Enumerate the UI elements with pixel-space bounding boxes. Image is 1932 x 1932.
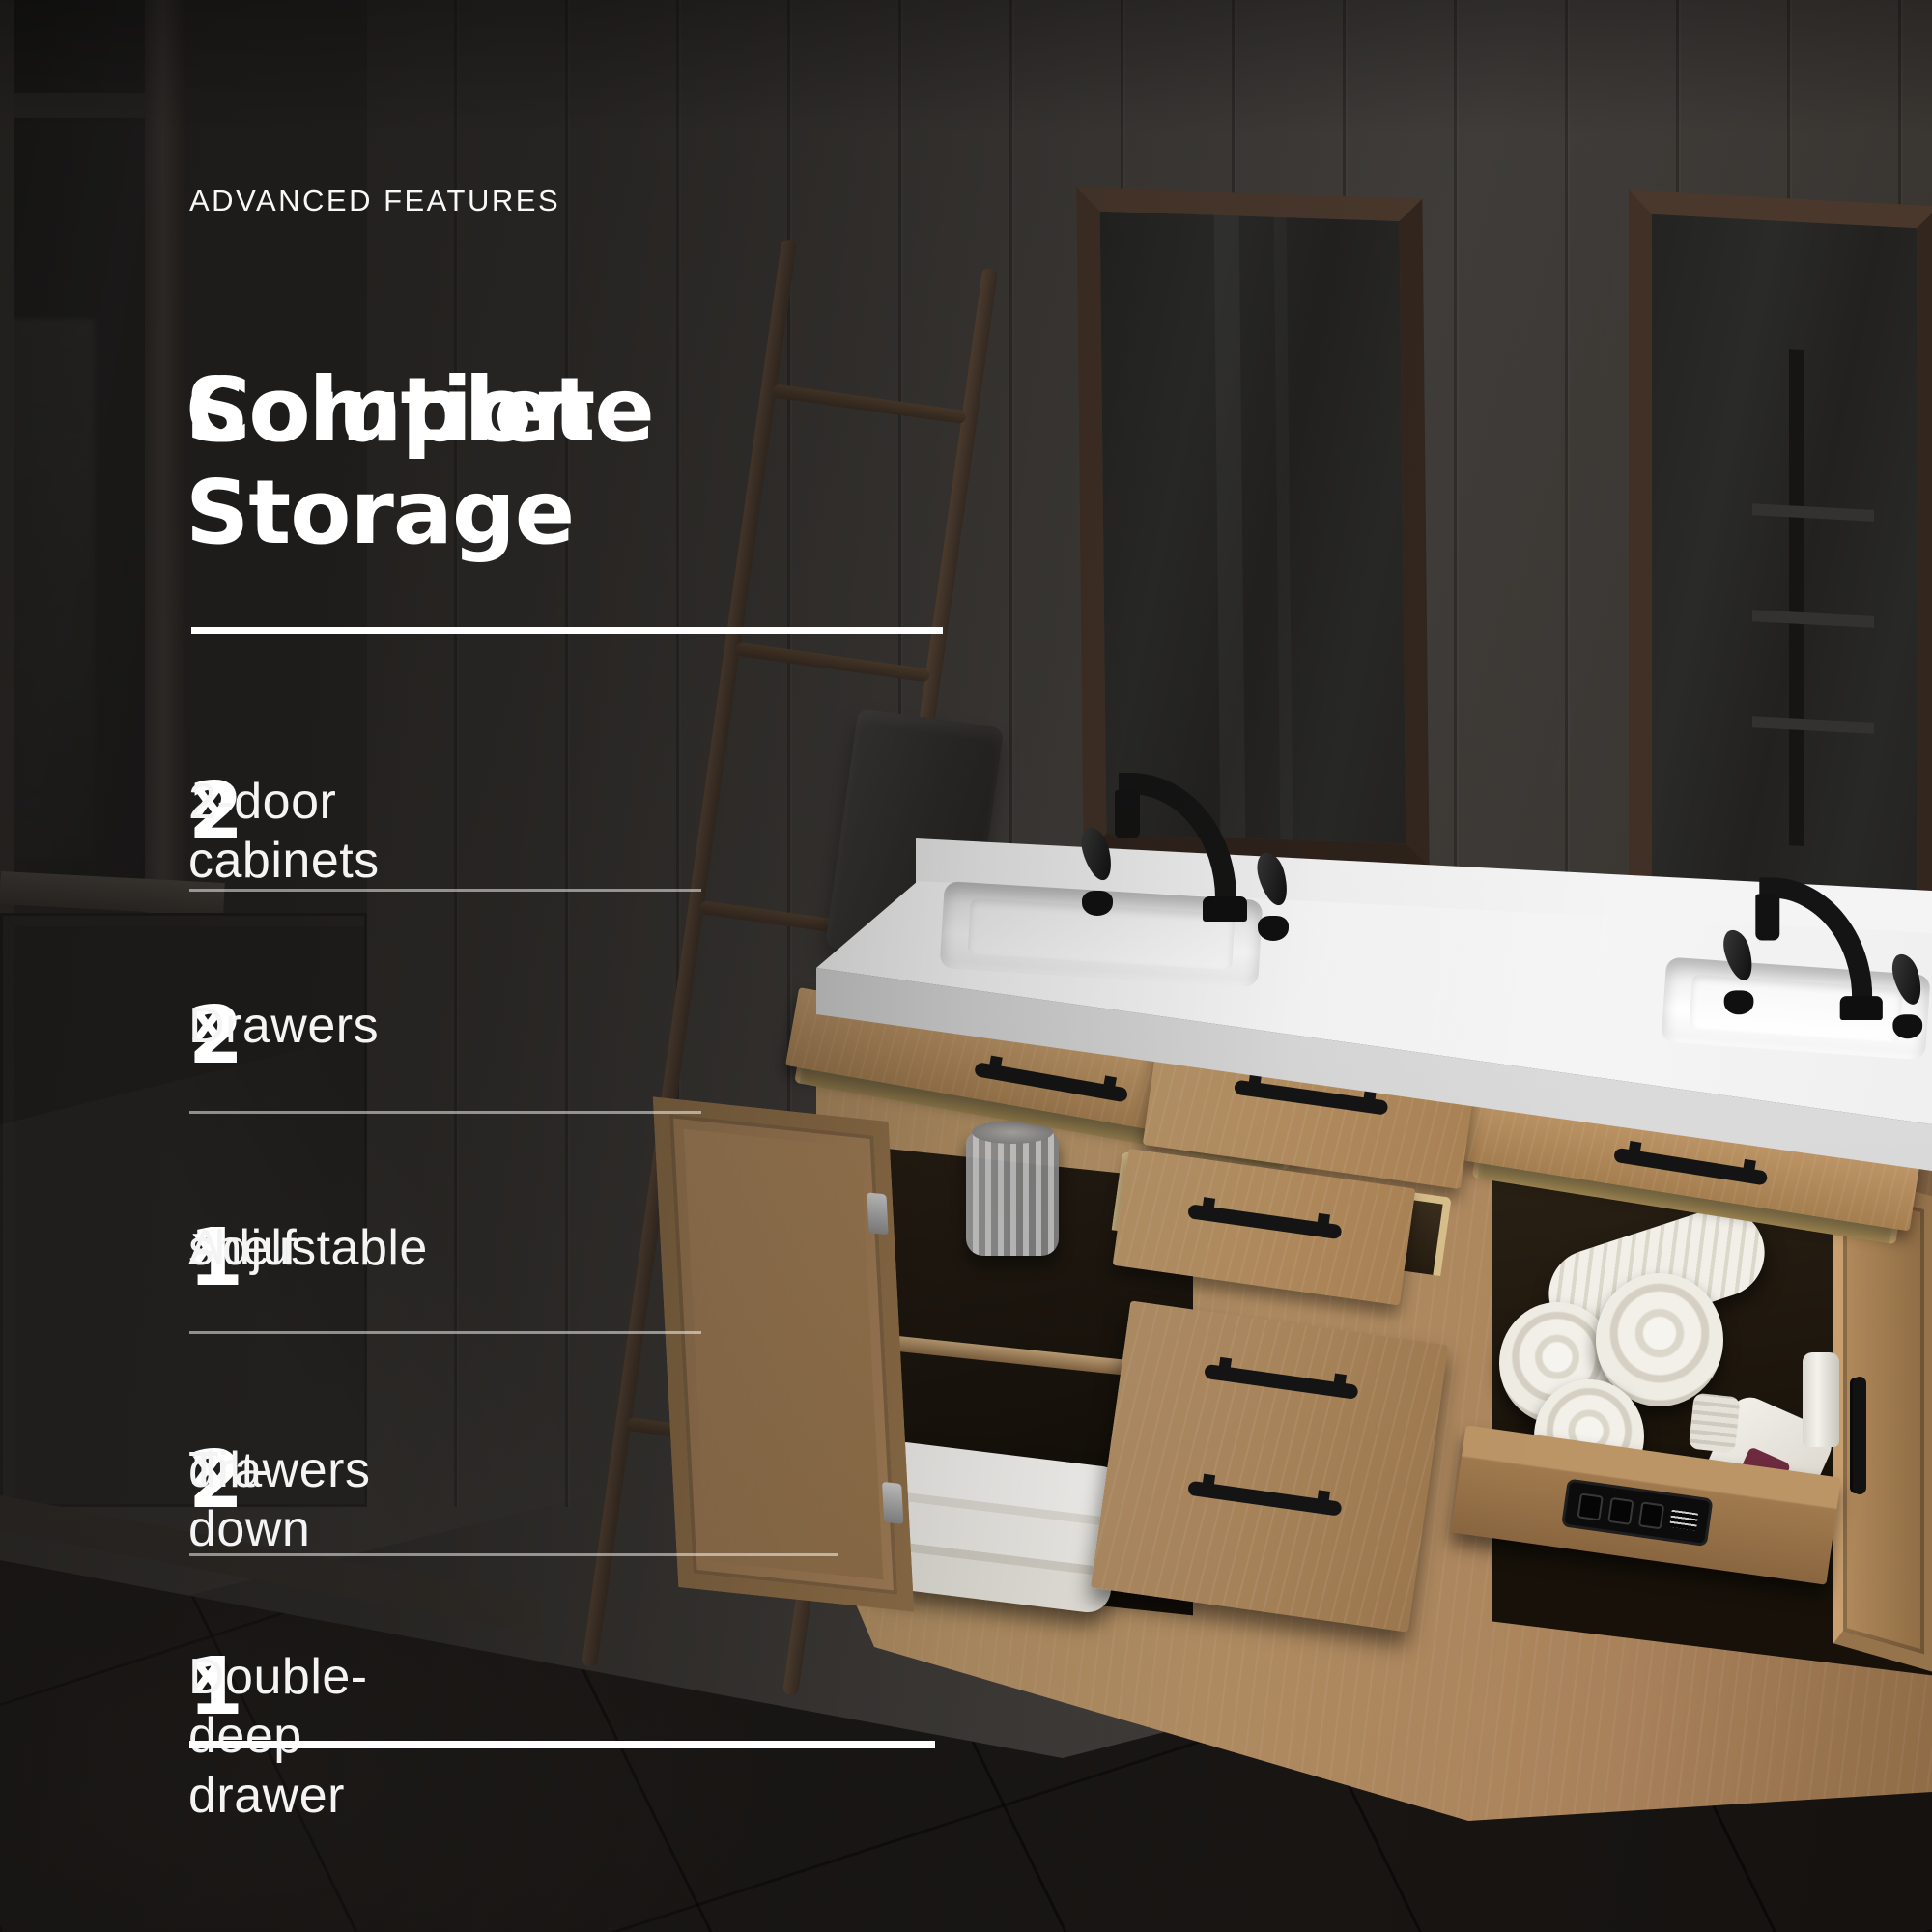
item-divider xyxy=(189,1553,838,1556)
item-divider xyxy=(189,889,701,892)
feature-label-line: drawers xyxy=(188,1441,370,1500)
feature-label-line: shelf xyxy=(188,1219,297,1278)
feature-label-line: Double-deep drawer xyxy=(188,1648,368,1826)
item-divider xyxy=(189,1331,701,1334)
eyebrow-label: ADVANCED FEATURES xyxy=(189,184,560,218)
text-overlay: ADVANCED FEATURES Complete Storage Solut… xyxy=(0,0,1932,1932)
title-line-2: Solution xyxy=(185,359,594,462)
heading-divider xyxy=(191,627,943,634)
item-divider xyxy=(189,1111,701,1114)
bottom-divider xyxy=(189,1741,935,1748)
feature-label-line: Drawers xyxy=(188,997,379,1056)
infographic-canvas: ADVANCED FEATURES Complete Storage Solut… xyxy=(0,0,1932,1932)
feature-label-line: 2-door cabinets xyxy=(188,773,380,892)
